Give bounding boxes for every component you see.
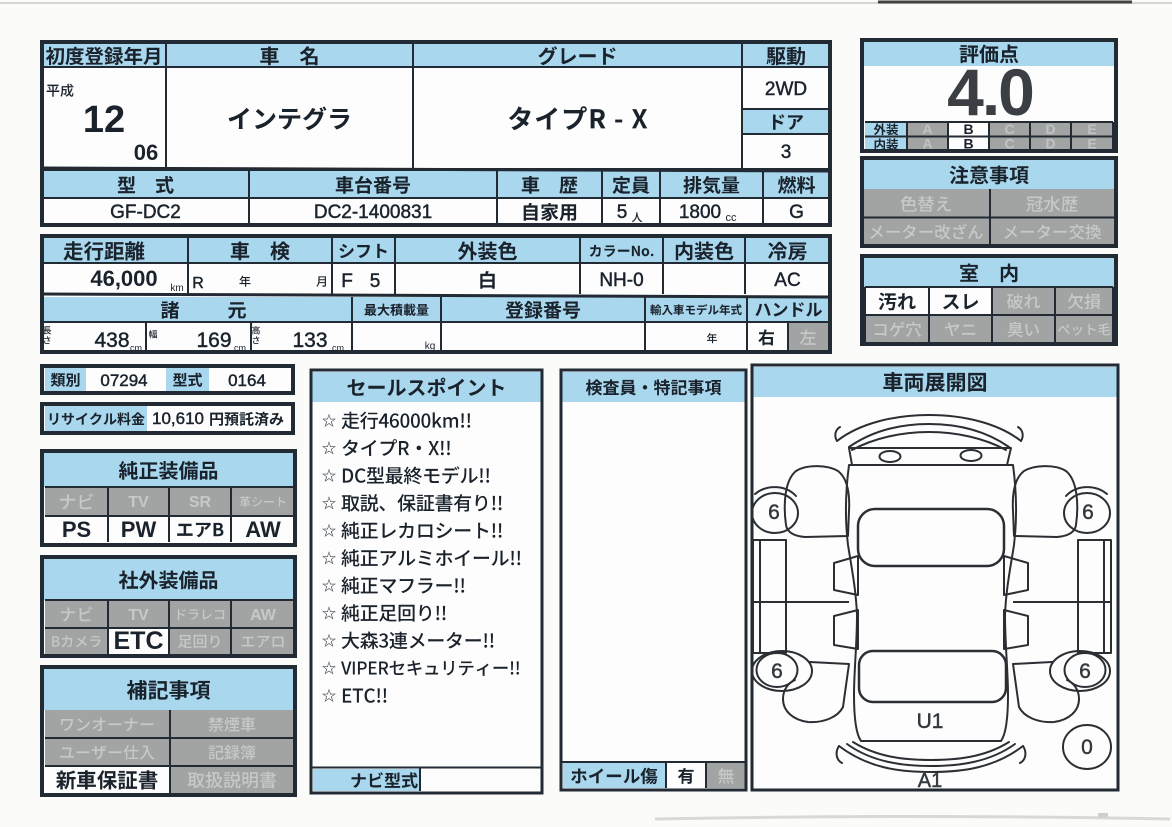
svg-text:NH-0: NH-0	[599, 270, 643, 291]
svg-text:1800: 1800	[679, 202, 721, 223]
svg-text:E: E	[1087, 136, 1096, 152]
svg-text:TV: TV	[128, 494, 149, 511]
svg-text:kg: kg	[425, 341, 436, 352]
svg-text:4.0: 4.0	[947, 55, 1033, 129]
svg-text:PW: PW	[121, 517, 157, 542]
svg-text:DC2-1400831: DC2-1400831	[314, 202, 432, 223]
svg-text:0: 0	[1081, 736, 1093, 759]
svg-text:D: D	[1045, 136, 1055, 152]
svg-text:cm: cm	[234, 343, 246, 353]
svg-text:cm: cm	[130, 343, 142, 353]
svg-text:km: km	[170, 283, 183, 294]
svg-text:F: F	[341, 271, 353, 292]
svg-text:cc: cc	[726, 212, 738, 224]
svg-text:3: 3	[781, 142, 792, 163]
svg-text:cm: cm	[332, 343, 344, 353]
svg-text:6: 6	[768, 501, 780, 524]
svg-text:C: C	[1004, 136, 1014, 152]
svg-text:5: 5	[617, 202, 628, 223]
svg-text:0164: 0164	[228, 371, 266, 390]
svg-text:133: 133	[292, 329, 327, 352]
svg-text:A1: A1	[918, 770, 942, 792]
svg-text:R: R	[192, 275, 204, 292]
svg-text:PS: PS	[62, 517, 91, 542]
svg-text:SR: SR	[189, 494, 212, 511]
svg-text:AW: AW	[245, 517, 281, 542]
svg-text:06: 06	[134, 140, 158, 165]
svg-text:2WD: 2WD	[765, 79, 807, 100]
svg-text:169: 169	[196, 329, 231, 352]
svg-text:10,610: 10,610	[152, 409, 204, 428]
svg-text:AW: AW	[250, 607, 277, 624]
svg-text:46,000: 46,000	[90, 266, 157, 291]
svg-text:07294: 07294	[100, 371, 147, 390]
svg-text:B: B	[963, 136, 973, 152]
svg-text:ETC: ETC	[114, 627, 164, 655]
svg-text:438: 438	[94, 329, 129, 352]
svg-text:5: 5	[370, 271, 381, 292]
svg-text:TV: TV	[128, 607, 149, 624]
svg-text:GF-DC2: GF-DC2	[110, 202, 181, 223]
svg-text:U1: U1	[917, 710, 944, 733]
svg-text:A: A	[922, 136, 932, 152]
svg-text:6: 6	[771, 660, 783, 683]
svg-text:AC: AC	[774, 270, 800, 291]
svg-text:6: 6	[1082, 501, 1094, 524]
svg-text:6: 6	[1079, 660, 1091, 683]
svg-text:G: G	[789, 202, 804, 223]
svg-text:12: 12	[83, 99, 125, 141]
